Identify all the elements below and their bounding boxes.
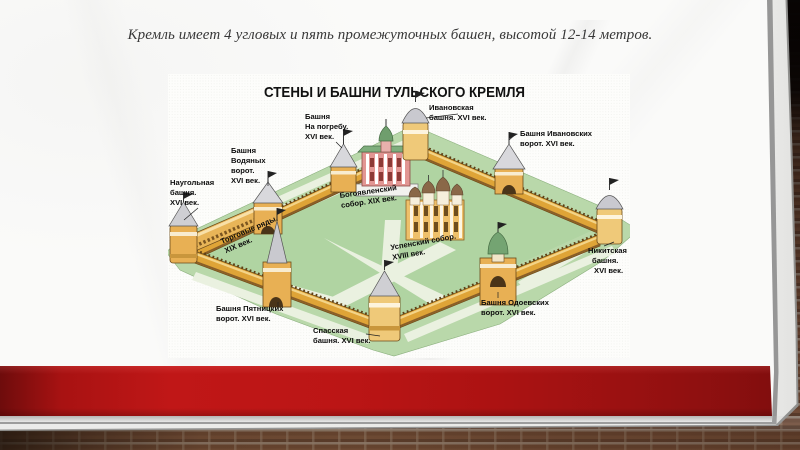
svg-text:ворот. XVI век.: ворот. XVI век.	[481, 308, 536, 317]
svg-text:На погребу.: На погребу.	[305, 122, 348, 131]
svg-text:башня.: башня.	[592, 256, 618, 265]
svg-text:Никитская: Никитская	[588, 246, 627, 255]
svg-text:XVI век.: XVI век.	[231, 176, 260, 185]
svg-text:Наугольная: Наугольная	[170, 178, 214, 187]
svg-text:Башня Одоевских: Башня Одоевских	[481, 298, 550, 307]
svg-text:Водяных: Водяных	[231, 156, 266, 165]
svg-text:XVI век.: XVI век.	[305, 132, 334, 141]
svg-text:Башня Ивановских: Башня Ивановских	[520, 129, 593, 138]
svg-text:ворот.: ворот.	[231, 166, 254, 175]
svg-text:ворот. XVI век.: ворот. XVI век.	[216, 314, 271, 323]
svg-text:башня. XVI век.: башня. XVI век.	[313, 336, 371, 345]
svg-text:башня. XVI век.: башня. XVI век.	[429, 113, 487, 122]
svg-text:Башня: Башня	[231, 146, 256, 155]
svg-text:СТЕНЫ И БАШНИ ТУЛЬСКОГО КРЕМЛЯ: СТЕНЫ И БАШНИ ТУЛЬСКОГО КРЕМЛЯ	[264, 84, 525, 101]
svg-text:Спасская: Спасская	[313, 326, 348, 335]
svg-text:XVI век.: XVI век.	[170, 198, 199, 207]
svg-text:Башня: Башня	[305, 112, 330, 121]
svg-text:башня.: башня.	[170, 188, 196, 197]
svg-text:Ивановская: Ивановская	[429, 103, 474, 112]
svg-text:XVI век.: XVI век.	[594, 266, 623, 275]
svg-text:Башня Пятницких: Башня Пятницких	[216, 304, 284, 313]
svg-text:ворот. XVI век.: ворот. XVI век.	[520, 139, 575, 148]
